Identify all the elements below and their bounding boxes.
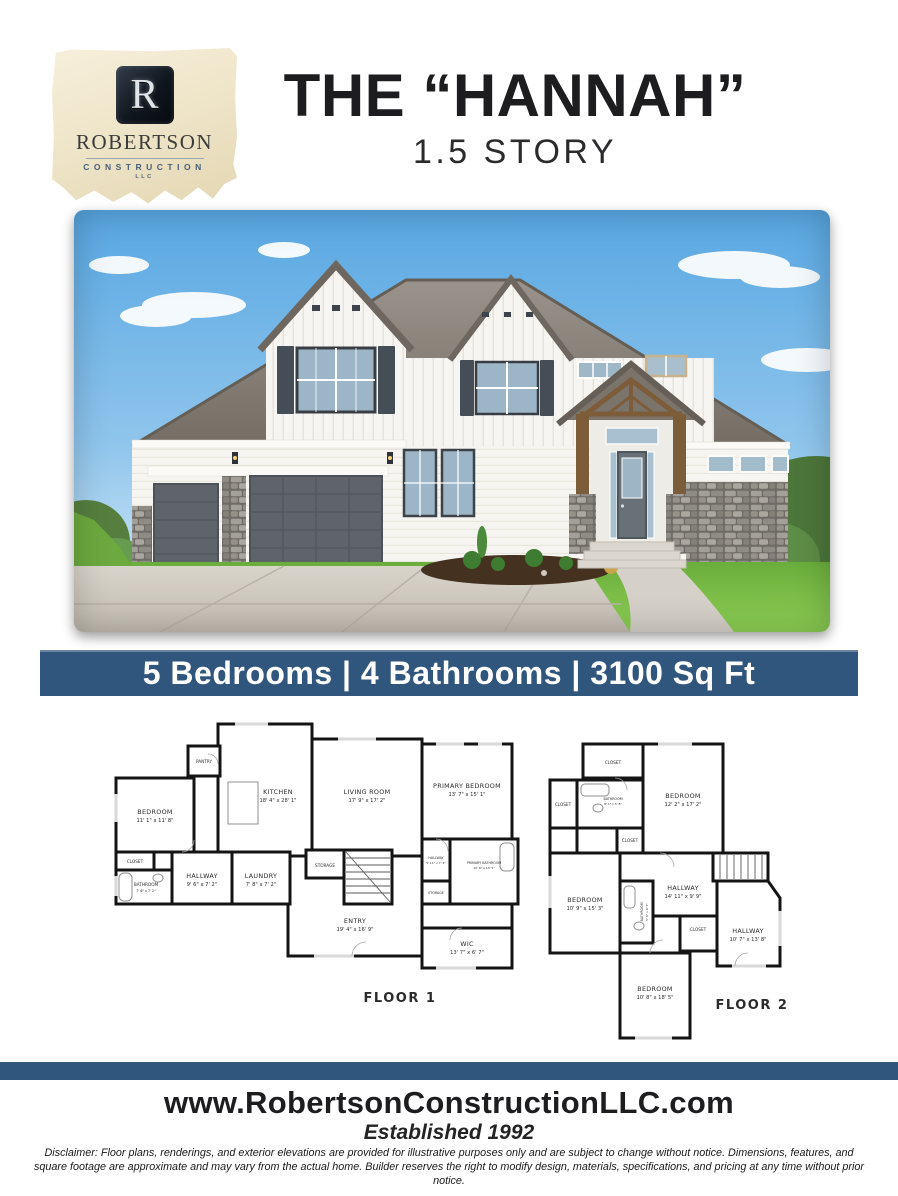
room-bedroom-bottom-label: BEDROOM [637,985,672,993]
floor2-caption: FLOOR 2 [716,998,789,1013]
entry-steps [578,542,686,568]
room-bedroom-left-label: BEDROOM [567,896,602,904]
room-closet-label: CLOSET [127,859,144,864]
flyer-page: R ROBERTSON CONSTRUCTION LLC THE “HANNAH… [0,0,898,1196]
room-hallway-right-dims: 10' 7" x 13' 8" [729,937,766,943]
house-photo [74,210,830,632]
website-text: www.RobertsonConstructionLLC.com [0,1085,898,1121]
room-bathroom-mid-label: BATHROOM [640,902,644,921]
room-storage-center-label: STORAGE [315,863,335,868]
room-bathroom-top-dims: 8' 1" x 5' 8" [604,802,622,806]
room-bathroom-dims: 7' 6" x 7' 2" [136,889,156,893]
specs-text: 5 Bedrooms | 4 Bathrooms | 3100 Sq Ft [143,655,756,692]
room-bathroom-top-label: BATHROOM [603,797,622,801]
robertson-logo: R ROBERTSON CONSTRUCTION LLC [52,48,237,210]
header: THE “HANNAH” 1.5 STORY [250,64,780,172]
room-hallway-label: HALLWAY [186,872,218,880]
room-bedroom-left-dims: 10' 9" x 15' 3" [566,906,603,912]
room-hallway-dims: 9' 6" x 7' 2" [187,882,218,888]
room-bedroom-top-dims: 12' 2" x 17' 2" [664,802,701,808]
room-kitchen-dims: 18' 4" x 28' 1" [259,798,296,804]
room-storage-right-label: STORAGE [428,891,444,895]
floor2-plan: CLOSET BEDROOM 12' 2" x 17' 2" CLOSET BA… [540,726,810,1046]
room-bedroom-bottom-dims: 10' 8" x 18' 5" [636,995,673,1001]
room-laundry-label: LAUNDRY [245,872,278,880]
disclaimer-text: Disclaimer: Floor plans, renderings, and… [29,1146,869,1188]
footer-divider-bar [0,1062,898,1080]
room-bedroom-dims: 11' 1" x 11' 8" [136,818,173,824]
floor1-walls [116,724,518,968]
logo-monogram-badge: R [116,66,174,124]
room-entry-dims: 19' 4" x 16' 9" [336,927,373,933]
room-bathroom-mid-dims: 5' 6" x 9' 5" [645,903,649,921]
floor1-caption: FLOOR 1 [364,991,437,1006]
room-primary-bathroom-label: PRIMARY BATHROOM [467,861,502,865]
room-kitchen-label: KITCHEN [263,788,293,796]
page-subtitle: 1.5 STORY [250,133,780,172]
room-wic-label: WIC [460,940,474,948]
logo-llc-text: LLC [52,174,237,180]
room-hallway-right-label: HALLWAY [732,927,764,935]
room-bathroom-label: BATHROOM [134,882,159,887]
room-wic-dims: 13' 7" x 6' 7" [450,950,484,956]
room-living-dims: 17' 9" x 17' 2" [348,798,385,804]
room-closet-top-label: CLOSET [605,760,622,765]
room-hallway-small-dims: 5' 11" x 7' 4" [426,861,446,865]
room-pantry-label: PANTRY [196,759,212,764]
floor2-walls [550,744,780,1038]
page-title: THE “HANNAH” [250,64,780,127]
room-entry-label: ENTRY [344,917,366,925]
room-primary-bedroom-label: PRIMARY BEDROOM [433,782,501,790]
garage [132,452,393,568]
room-primary-bedroom-dims: 13' 7" x 15' 1" [448,792,485,798]
floor1-plan: PANTRY KITCHEN 18' 4" x 28' 1" BEDROOM 1… [100,706,550,1016]
room-hallway-upper-label: HALLWAY [667,884,699,892]
house-photo-illustration [74,210,830,632]
room-hallway-upper-dims: 14' 11" x 9' 9" [664,894,701,900]
specs-banner: 5 Bedrooms | 4 Bathrooms | 3100 Sq Ft [40,650,858,696]
room-closet-left-label: CLOSET [555,802,572,807]
room-hallway-small-label: HALLWAY [428,856,444,860]
room-closet-center-label: CLOSET [690,927,707,932]
room-primary-bathroom-dims: 10' 8" x 13' 5" [473,866,495,870]
logo-monogram-r-icon: R [130,74,158,116]
logo-divider [86,158,204,159]
room-bedroom-top-label: BEDROOM [665,792,700,800]
room-laundry-dims: 7' 8" x 7' 2" [246,882,277,888]
established-text: Established 1992 [0,1121,898,1145]
logo-division-text: CONSTRUCTION [52,162,237,172]
room-bedroom-label: BEDROOM [137,808,172,816]
room-living-label: LIVING ROOM [344,788,391,796]
logo-company-name: ROBERTSON [52,130,237,155]
room-closet-mid-label: CLOSET [622,838,639,843]
